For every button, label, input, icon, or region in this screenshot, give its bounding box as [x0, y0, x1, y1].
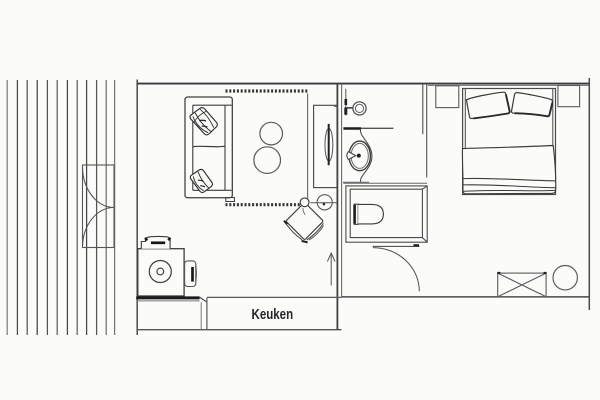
svg-text:Keuken: Keuken — [252, 307, 294, 323]
